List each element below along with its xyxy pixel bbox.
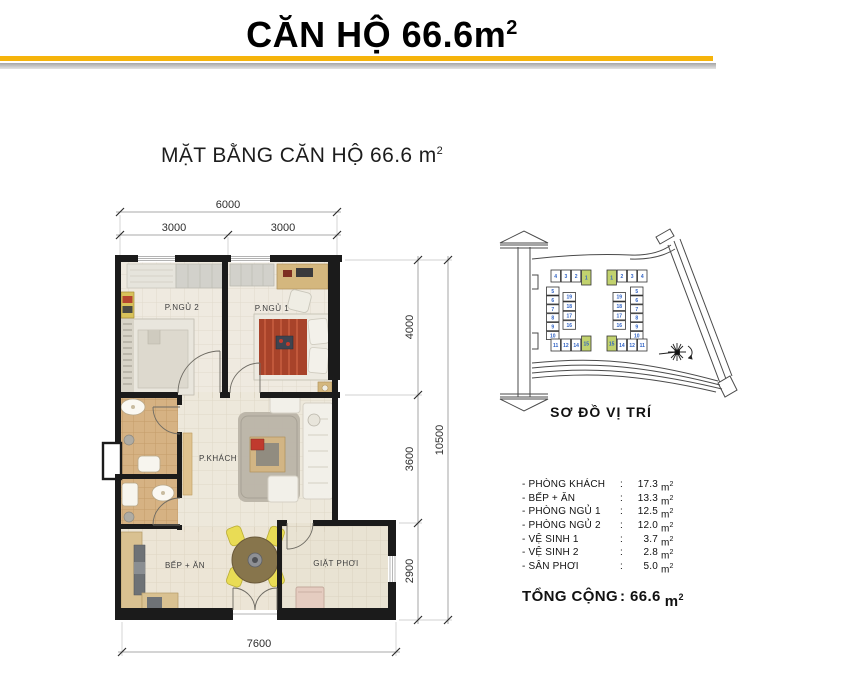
site-unit-number: 9: [635, 325, 638, 331]
site-unit-number: 18: [566, 304, 572, 310]
area-row-label: - PHÒNG NGỦ 1: [522, 507, 620, 521]
site-unit-number: 14: [619, 343, 625, 349]
area-row-value: 13.3: [630, 494, 661, 508]
site-unit-number: 8: [635, 316, 638, 322]
site-units: 4321567891019181716111214151234567891019…: [547, 270, 648, 351]
area-row: - PHÒNG NGỦ 2:12.0m2: [522, 521, 742, 535]
page-title-text: CĂN HỘ 66.6m: [246, 14, 506, 55]
area-row-label: - VỆ SINH 2: [522, 548, 620, 562]
site-unit-number: 6: [551, 298, 554, 304]
site-map-svg: 4321567891019181716111214151234567891019…: [480, 215, 740, 430]
site-unit-number: 9: [551, 325, 554, 331]
dim-side-mid: 3600: [404, 447, 416, 471]
site-unit-number: 11: [640, 343, 646, 349]
site-unit-number: 3: [631, 274, 634, 280]
site-unit-number: 6: [635, 298, 638, 304]
site-unit-number: 5: [551, 289, 554, 295]
area-row-value: 2.8: [630, 548, 661, 562]
site-map: 4321567891019181716111214151234567891019…: [480, 215, 740, 430]
area-row-separator: :: [620, 521, 630, 535]
site-unit-number: 12: [563, 343, 569, 349]
site-unit-number: 16: [566, 323, 572, 329]
room-label-laundry: GIẶT PHƠI: [313, 559, 358, 568]
site-unit-number: 19: [566, 295, 572, 301]
plan-heading-text: MẶT BẰNG CĂN HỘ 66.6 m: [161, 144, 437, 167]
area-row-value: 17.3: [630, 480, 661, 494]
dim-side-bottom: 2900: [404, 559, 416, 583]
page-title-sup: 2: [506, 17, 518, 39]
dim-side-total: 10500: [434, 425, 446, 456]
area-table: - PHÒNG KHÁCH:17.3m2- BẾP + ĂN:13.3m2- P…: [522, 480, 742, 611]
site-unit-number: 5: [635, 289, 638, 295]
area-row-separator: :: [620, 494, 630, 508]
area-total-separator: :: [620, 588, 630, 611]
site-unit-number: 11: [553, 343, 559, 349]
site-unit-number: 4: [554, 274, 557, 280]
area-row: - PHÒNG KHÁCH:17.3m2: [522, 480, 742, 494]
site-unit-number: 8: [551, 316, 554, 322]
area-row-unit: m2: [661, 521, 674, 535]
room-label-kitchen: BẾP + ĂN: [165, 560, 205, 570]
area-row-unit: m2: [661, 494, 674, 508]
area-row: - PHÒNG NGỦ 1:12.5m2: [522, 507, 742, 521]
area-row-separator: :: [620, 480, 630, 494]
area-row-value: 5.0: [630, 562, 661, 576]
area-row-label: - PHÒNG KHÁCH: [522, 480, 620, 494]
area-row-value: 12.0: [630, 521, 661, 535]
site-unit-number: 12: [629, 343, 635, 349]
site-unit-number: 1: [585, 275, 588, 281]
site-unit-number: 3: [565, 274, 568, 280]
area-row: - SÂN PHƠI:5.0m2: [522, 562, 742, 576]
area-row-unit: m2: [661, 548, 674, 562]
site-unit-number: 2: [575, 274, 578, 280]
site-unit-number: 2: [621, 274, 624, 280]
area-row: - VỆ SINH 2:2.8m2: [522, 548, 742, 562]
area-total-unit: m2: [665, 588, 684, 611]
area-total-row: TỔNG CỘNG : 66.6 m2: [522, 588, 742, 611]
area-row-separator: :: [620, 507, 630, 521]
area-row-separator: :: [620, 562, 630, 576]
area-row-label: - SÂN PHƠI: [522, 562, 620, 576]
site-unit-number: 4: [641, 274, 644, 280]
area-total-value: 66.6: [630, 588, 665, 611]
area-row-unit: m2: [661, 562, 674, 576]
site-unit-number: 17: [566, 314, 572, 320]
site-unit-number: 14: [573, 343, 579, 349]
site-unit-number: 10: [634, 333, 640, 339]
site-map-label: SƠ ĐỒ VỊ TRÍ: [550, 403, 652, 420]
dim-side-top: 4000: [404, 315, 416, 339]
area-row-label: - PHÒNG NGỦ 2: [522, 521, 620, 535]
room-label-living: P.KHÁCH: [199, 454, 237, 463]
area-rows: - PHÒNG KHÁCH:17.3m2- BẾP + ĂN:13.3m2- P…: [522, 480, 742, 575]
dim-bottom-total: 7600: [247, 638, 271, 650]
area-row-unit: m2: [661, 507, 674, 521]
site-unit-number: 17: [616, 314, 622, 320]
area-row-separator: :: [620, 535, 630, 549]
floor-plan-svg: P.NGỦ 2 P.NGỦ 1 P.KHÁCH BẾP + ĂN GIẶT PH…: [100, 190, 460, 680]
compass-icon: [659, 343, 692, 361]
plan-heading-sup: 2: [437, 145, 444, 157]
room-label-bedroom2: P.NGỦ 2: [165, 303, 200, 312]
plan-heading: MẶT BẰNG CĂN HỘ 66.6 m2: [161, 144, 443, 168]
site-unit-number: 16: [616, 323, 622, 329]
floor-plan: P.NGỦ 2 P.NGỦ 1 P.KHÁCH BẾP + ĂN GIẶT PH…: [100, 190, 460, 680]
site-unit-number: 10: [550, 333, 556, 339]
site-unit-number: 19: [616, 295, 622, 301]
page: CĂN HỘ 66.6m2 MẶT BẰNG CĂN HỘ 66.6 m2: [0, 0, 855, 687]
dim-top-left: 3000: [162, 222, 186, 234]
page-title: CĂN HỘ 66.6m2: [0, 6, 764, 57]
area-row-value: 3.7: [630, 535, 661, 549]
area-row-separator: :: [620, 548, 630, 562]
site-unit-number: 1: [610, 275, 613, 281]
site-unit-number: 7: [551, 307, 554, 313]
dim-top-right: 3000: [271, 222, 295, 234]
site-unit-number: 18: [616, 304, 622, 310]
accent-rule-yellow: [0, 56, 713, 61]
area-row-unit: m2: [661, 480, 674, 494]
area-total-label: TỔNG CỘNG: [522, 588, 620, 611]
site-unit-number: 15: [609, 341, 615, 347]
accent-rule-gray: [0, 63, 716, 69]
room-label-bedroom1: P.NGỦ 1: [255, 304, 290, 313]
area-row-value: 12.5: [630, 507, 661, 521]
site-unit-number: 7: [635, 307, 638, 313]
site-unit-number: 15: [584, 341, 590, 347]
area-row-unit: m2: [661, 535, 674, 549]
dim-top-total: 6000: [216, 199, 240, 211]
